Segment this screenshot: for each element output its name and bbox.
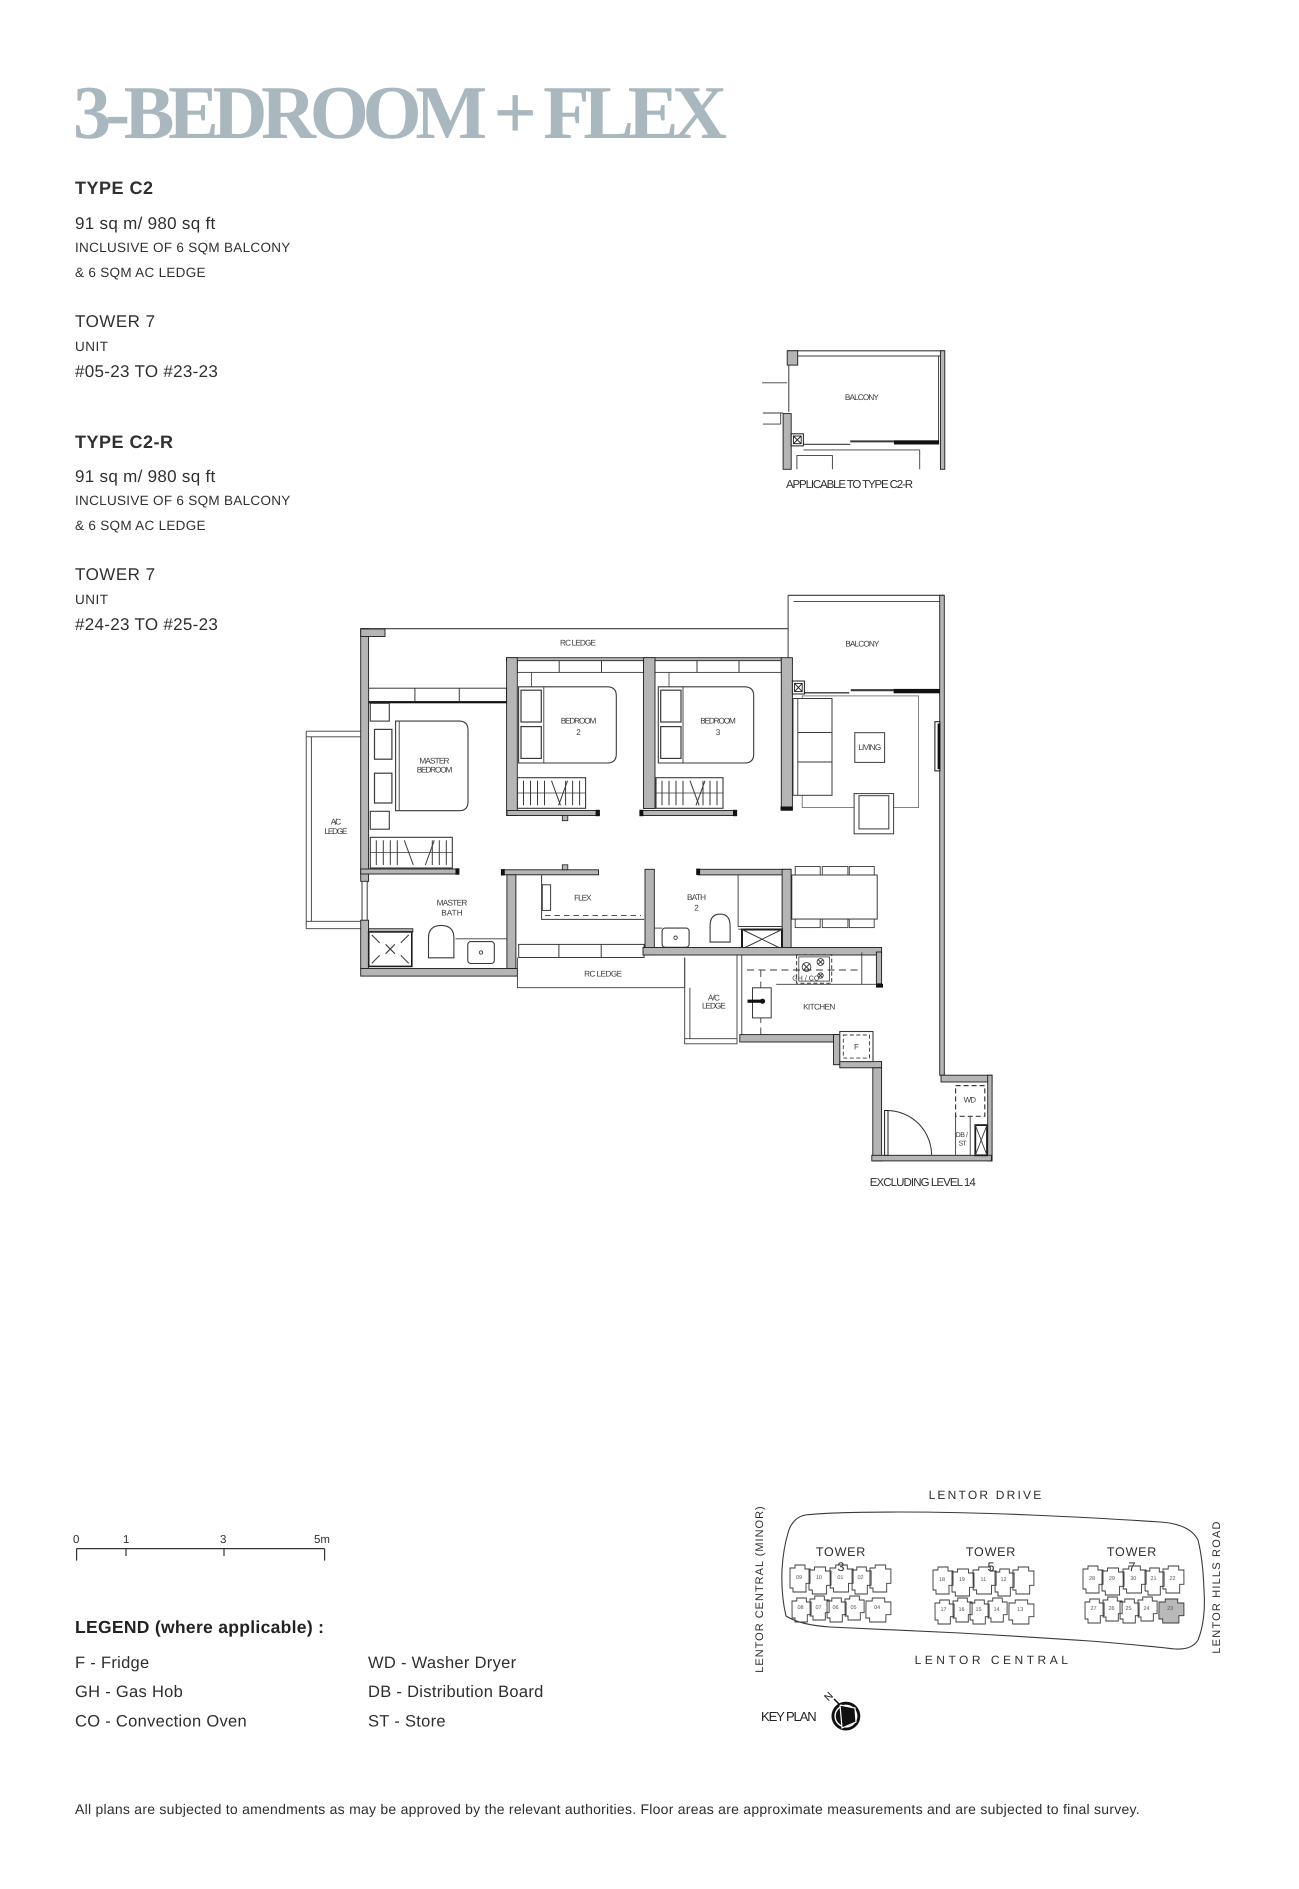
svg-text:19: 19 xyxy=(959,1577,965,1583)
svg-text:BATH: BATH xyxy=(687,893,706,902)
svg-text:18: 18 xyxy=(939,1577,945,1583)
svg-text:DB /: DB / xyxy=(956,1131,968,1139)
svg-text:RC LEDGE: RC LEDGE xyxy=(560,639,597,648)
svg-text:BALCONY: BALCONY xyxy=(845,640,880,649)
svg-text:BATH: BATH xyxy=(441,909,463,918)
svg-text:LENTOR CENTRAL: LENTOR CENTRAL xyxy=(915,1653,1072,1667)
svg-text:26: 26 xyxy=(1108,1606,1114,1612)
svg-text:F - Fridge: F - Fridge xyxy=(75,1654,150,1672)
svg-text:F: F xyxy=(854,1043,859,1052)
svg-text:TOWER 7: TOWER 7 xyxy=(75,312,156,331)
svg-text:30: 30 xyxy=(1130,1576,1136,1582)
svg-text:LEGEND (where applicable) :: LEGEND (where applicable) : xyxy=(75,1617,324,1637)
svg-text:& 6 SQM AC LEDGE: & 6 SQM AC LEDGE xyxy=(75,265,206,280)
svg-text:ST - Store: ST - Store xyxy=(368,1713,446,1731)
svg-text:WD: WD xyxy=(964,1095,977,1104)
svg-text:21: 21 xyxy=(1150,1576,1156,1582)
svg-text:LENTOR DRIVE: LENTOR DRIVE xyxy=(929,1488,1044,1502)
svg-text:LEDGE: LEDGE xyxy=(325,827,349,836)
svg-text:DB - Distribution Board: DB - Distribution Board xyxy=(368,1683,544,1701)
svg-text:3: 3 xyxy=(838,1560,845,1574)
svg-text:12: 12 xyxy=(1000,1577,1006,1583)
svg-text:RC LEDGE: RC LEDGE xyxy=(584,969,623,978)
svg-text:CO - Convection Oven: CO - Convection Oven xyxy=(75,1713,247,1731)
svg-text:LENTOR HILLS ROAD: LENTOR HILLS ROAD xyxy=(1211,1520,1223,1653)
svg-text:04: 04 xyxy=(874,1605,880,1611)
svg-text:LIVING: LIVING xyxy=(858,743,881,752)
svg-text:06: 06 xyxy=(832,1605,838,1611)
svg-text:07: 07 xyxy=(815,1605,821,1611)
svg-text:1: 1 xyxy=(123,1534,129,1546)
svg-text:01: 01 xyxy=(837,1575,843,1581)
svg-text:KITCHEN: KITCHEN xyxy=(803,1003,835,1012)
svg-text:UNIT: UNIT xyxy=(75,592,109,607)
svg-text:TOWER 7: TOWER 7 xyxy=(75,565,156,584)
svg-text:#24-23 TO #25-23: #24-23 TO #25-23 xyxy=(75,615,218,634)
svg-text:WD - Washer Dryer: WD - Washer Dryer xyxy=(368,1654,517,1672)
svg-text:15: 15 xyxy=(975,1607,981,1613)
svg-text:INCLUSIVE OF 6 SQM BALCONY: INCLUSIVE OF 6 SQM BALCONY xyxy=(75,240,291,255)
svg-text:17: 17 xyxy=(940,1607,946,1613)
svg-text:29: 29 xyxy=(1109,1576,1115,1582)
svg-text:KEY PLAN: KEY PLAN xyxy=(761,1709,817,1724)
svg-text:TOWER: TOWER xyxy=(966,1545,1016,1559)
svg-text:24: 24 xyxy=(1143,1606,1149,1612)
svg-text:22: 22 xyxy=(1169,1576,1175,1582)
svg-text:13: 13 xyxy=(1017,1607,1023,1613)
svg-text:GH / CO: GH / CO xyxy=(792,975,820,983)
svg-text:16: 16 xyxy=(958,1607,964,1613)
svg-text:GH - Gas Hob: GH - Gas Hob xyxy=(75,1683,183,1701)
svg-text:3-BEDROOM + FLEX: 3-BEDROOM + FLEX xyxy=(73,71,733,155)
svg-text:91 sq m/ 980 sq ft: 91 sq m/ 980 sq ft xyxy=(75,214,216,233)
svg-text:23: 23 xyxy=(1167,1606,1173,1612)
svg-text:27: 27 xyxy=(1090,1606,1096,1612)
svg-text:3: 3 xyxy=(220,1534,226,1546)
svg-text:LENTOR CENTRAL (MINOR): LENTOR CENTRAL (MINOR) xyxy=(754,1505,766,1672)
svg-text:EXCLUDING LEVEL 14: EXCLUDING LEVEL 14 xyxy=(870,1177,977,1189)
svg-text:7: 7 xyxy=(1129,1560,1136,1574)
svg-text:APPLICABLE TO TYPE C2-R: APPLICABLE TO TYPE C2-R xyxy=(786,479,913,491)
svg-text:BEDROOM: BEDROOM xyxy=(700,717,736,726)
svg-text:& 6 SQM AC LEDGE: & 6 SQM AC LEDGE xyxy=(75,518,206,533)
svg-text:14: 14 xyxy=(993,1607,999,1613)
svg-text:All plans are subjected to ame: All plans are subjected to amendments as… xyxy=(75,1801,1140,1817)
svg-text:ST: ST xyxy=(959,1141,968,1148)
svg-text:BEDROOM: BEDROOM xyxy=(417,765,453,774)
svg-text:91 sq m/ 980 sq ft: 91 sq m/ 980 sq ft xyxy=(75,467,216,486)
svg-text:2: 2 xyxy=(694,904,699,913)
svg-text:10: 10 xyxy=(816,1575,822,1581)
svg-text:A/C: A/C xyxy=(331,818,342,827)
svg-text:TOWER: TOWER xyxy=(1107,1545,1157,1559)
svg-text:0: 0 xyxy=(73,1534,79,1546)
svg-text:05: 05 xyxy=(850,1605,856,1611)
svg-text:25: 25 xyxy=(1125,1606,1131,1612)
svg-text:5m: 5m xyxy=(314,1534,330,1546)
svg-text:TOWER: TOWER xyxy=(816,1545,866,1559)
svg-text:09: 09 xyxy=(796,1575,802,1581)
svg-text:INCLUSIVE OF 6 SQM BALCONY: INCLUSIVE OF 6 SQM BALCONY xyxy=(75,493,291,508)
svg-text:MASTER: MASTER xyxy=(437,898,468,907)
svg-text:UNIT: UNIT xyxy=(75,339,109,354)
svg-text:02: 02 xyxy=(857,1575,863,1581)
svg-text:BALCONY: BALCONY xyxy=(845,393,880,402)
svg-text:BEDROOM: BEDROOM xyxy=(561,717,597,726)
svg-text:TYPE C2: TYPE C2 xyxy=(75,178,154,198)
svg-text:2: 2 xyxy=(576,728,581,737)
svg-text:TYPE C2-R: TYPE C2-R xyxy=(75,432,174,452)
svg-text:FLEX: FLEX xyxy=(574,894,592,903)
svg-text:3: 3 xyxy=(716,728,721,737)
svg-text:LEDGE: LEDGE xyxy=(702,1001,726,1010)
svg-text:28: 28 xyxy=(1089,1576,1095,1582)
svg-text:08: 08 xyxy=(797,1605,803,1611)
svg-text:#05-23 TO #23-23: #05-23 TO #23-23 xyxy=(75,362,218,381)
svg-text:11: 11 xyxy=(981,1577,987,1583)
